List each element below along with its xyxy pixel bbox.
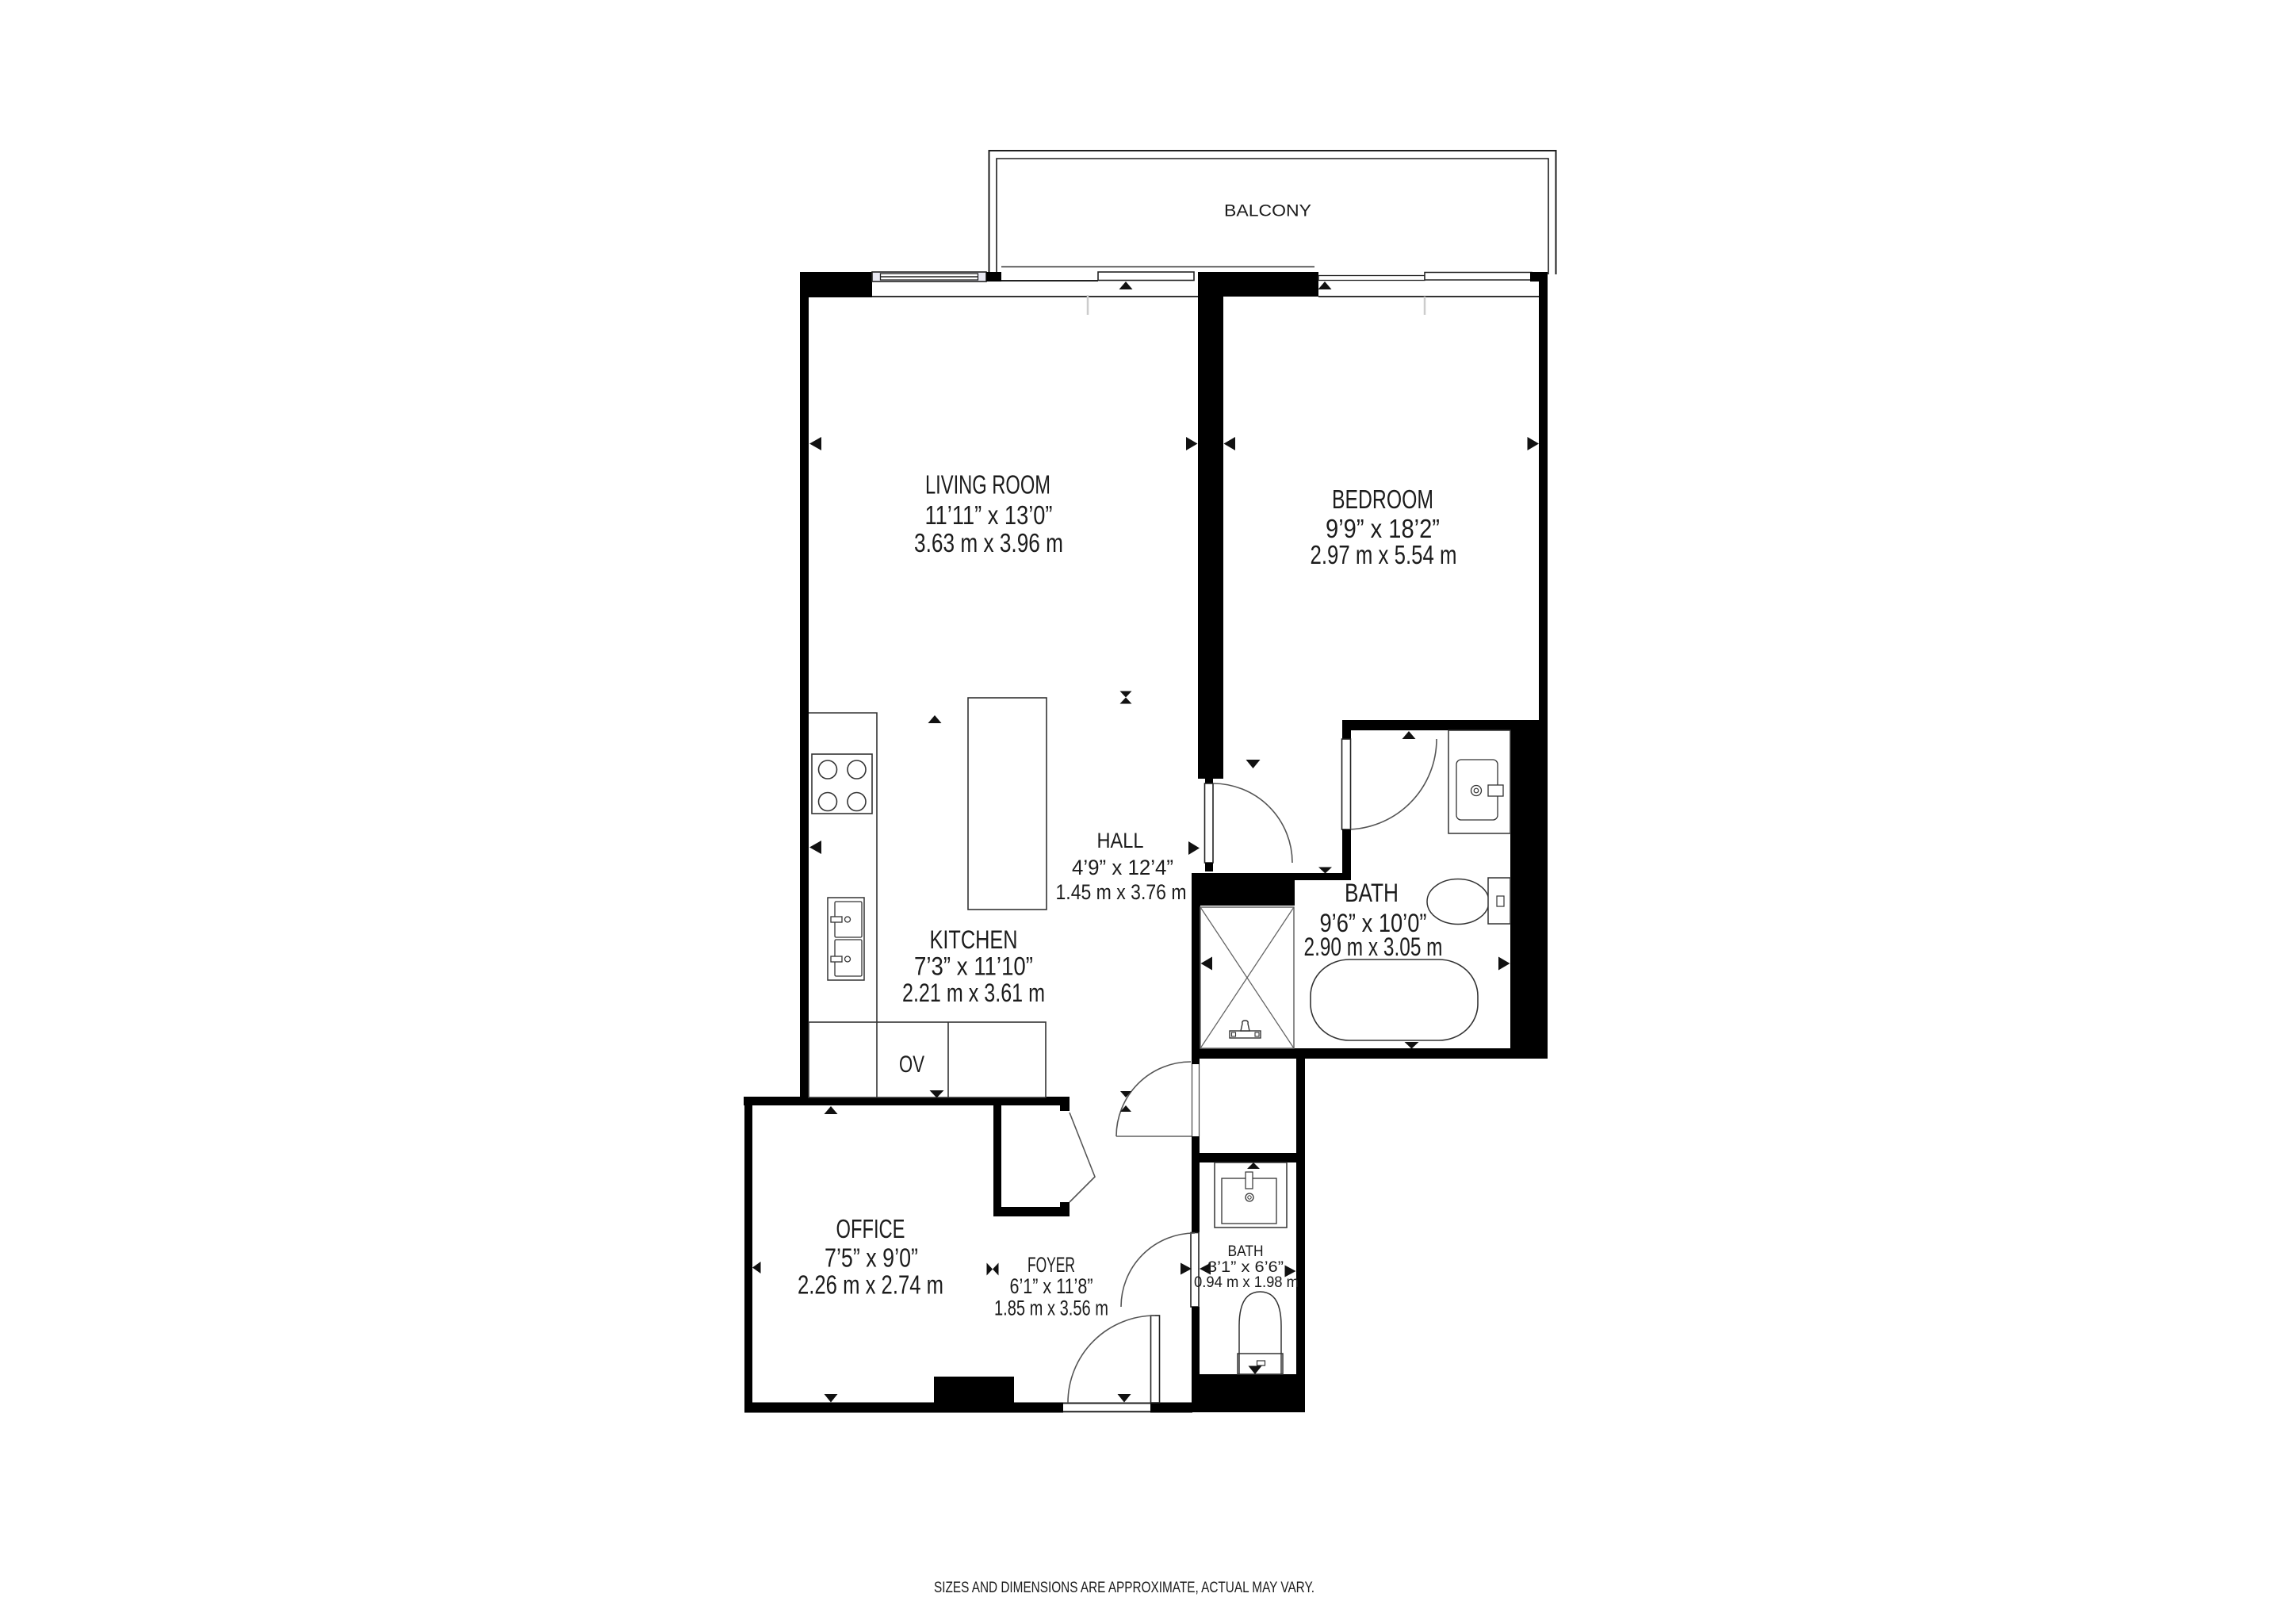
svg-text:OFFICE: OFFICE (836, 1215, 905, 1244)
svg-text:7’5” x 9’0”: 7’5” x 9’0” (825, 1244, 918, 1274)
svg-text:11’11” x 13’0”: 11’11” x 13’0” (925, 500, 1053, 530)
svg-text:SIZES AND DIMENSIONS ARE APPRO: SIZES AND DIMENSIONS ARE APPROXIMATE, AC… (934, 1580, 1314, 1596)
svg-text:FOYER: FOYER (1027, 1253, 1075, 1277)
svg-text:OV: OV (899, 1051, 924, 1078)
svg-text:HALL: HALL (1097, 829, 1144, 852)
svg-text:BATH: BATH (1228, 1243, 1264, 1260)
svg-text:BALCONY: BALCONY (1224, 202, 1311, 220)
svg-text:0.94 m x 1.98 m: 0.94 m x 1.98 m (1194, 1274, 1299, 1291)
svg-text:BEDROOM: BEDROOM (1332, 485, 1433, 514)
svg-text:BATH: BATH (1345, 879, 1399, 907)
svg-text:3’1” x 6’6”: 3’1” x 6’6” (1207, 1259, 1284, 1276)
svg-text:KITCHEN: KITCHEN (930, 925, 1018, 954)
svg-text:2.21 m x 3.61 m: 2.21 m x 3.61 m (902, 979, 1045, 1007)
svg-text:6’1” x 11’8”: 6’1” x 11’8” (1010, 1274, 1093, 1298)
svg-text:LIVING ROOM: LIVING ROOM (925, 470, 1050, 500)
svg-text:2.90 m x 3.05 m: 2.90 m x 3.05 m (1304, 933, 1443, 961)
svg-text:2.97 m x 5.54 m: 2.97 m x 5.54 m (1311, 540, 1457, 569)
svg-text:3.63 m x 3.96 m: 3.63 m x 3.96 m (914, 528, 1063, 557)
svg-text:1.85 m x 3.56 m: 1.85 m x 3.56 m (994, 1297, 1108, 1320)
svg-text:4’9” x 12’4”: 4’9” x 12’4” (1072, 856, 1173, 879)
svg-text:2.26 m x 2.74 m: 2.26 m x 2.74 m (798, 1271, 943, 1300)
svg-text:1.45 m x 3.76 m: 1.45 m x 3.76 m (1056, 880, 1187, 904)
svg-text:7’3” x 11’10”: 7’3” x 11’10” (914, 952, 1033, 981)
svg-text:9’9” x 18’2”: 9’9” x 18’2” (1326, 514, 1440, 543)
